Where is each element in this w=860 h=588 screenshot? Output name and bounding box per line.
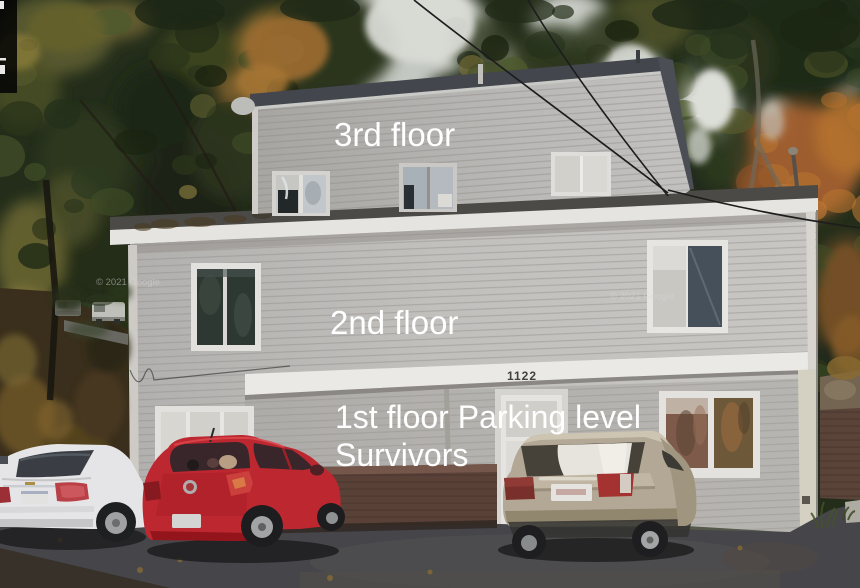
svg-text:1st floor Parking level: 1st floor Parking level [335,399,641,435]
svg-text:3rd floor: 3rd floor [334,116,455,153]
svg-text:© 2021 Google: © 2021 Google [610,291,674,302]
svg-text:1122: 1122 [507,369,537,383]
svg-text:2nd floor: 2nd floor [330,304,458,341]
svg-text:Survivors: Survivors [335,437,468,473]
svg-text:© 2021 Google: © 2021 Google [96,277,160,288]
